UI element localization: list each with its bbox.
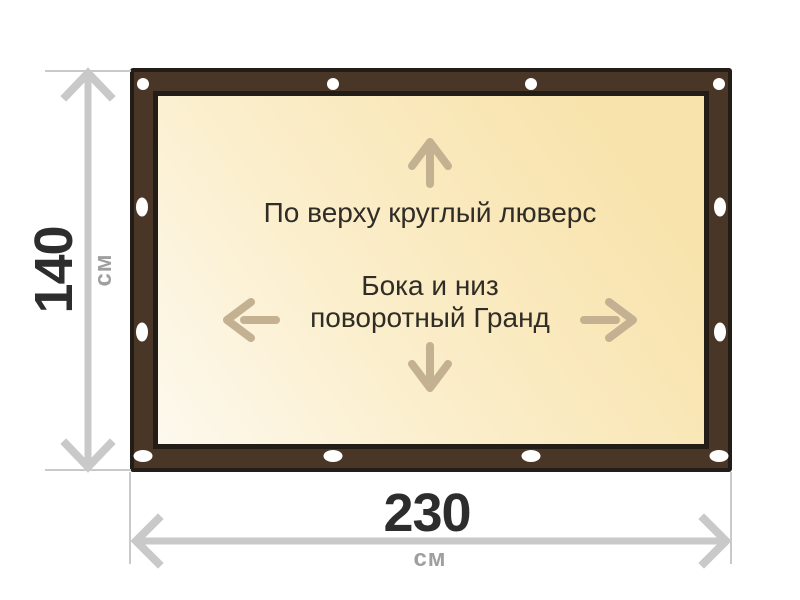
round-grommet-icon (327, 78, 339, 90)
banner-size-diagram: По верху круглый люверс Бока и низ повор… (0, 0, 800, 600)
height-dimension-value: 140 (23, 226, 85, 313)
sides-grommet-label: Бока и низ поворотный Гранд (130, 270, 730, 334)
round-grommet-icon (137, 78, 149, 90)
top-grommet-label: По верху круглый люверс (130, 197, 730, 229)
width-dimension-unit: см (413, 545, 446, 573)
oval-grommet-icon (521, 450, 540, 462)
sides-grommet-label-line2: поворотный Гранд (130, 302, 730, 334)
sides-grommet-label-line1: Бока и низ (130, 270, 730, 302)
oval-grommet-icon (323, 450, 342, 462)
width-dimension-value: 230 (383, 482, 470, 544)
round-grommet-icon (525, 78, 537, 90)
height-dimension-unit: см (90, 253, 118, 286)
oval-grommet-icon (710, 450, 729, 462)
oval-grommet-icon (134, 450, 153, 462)
round-grommet-icon (713, 78, 725, 90)
